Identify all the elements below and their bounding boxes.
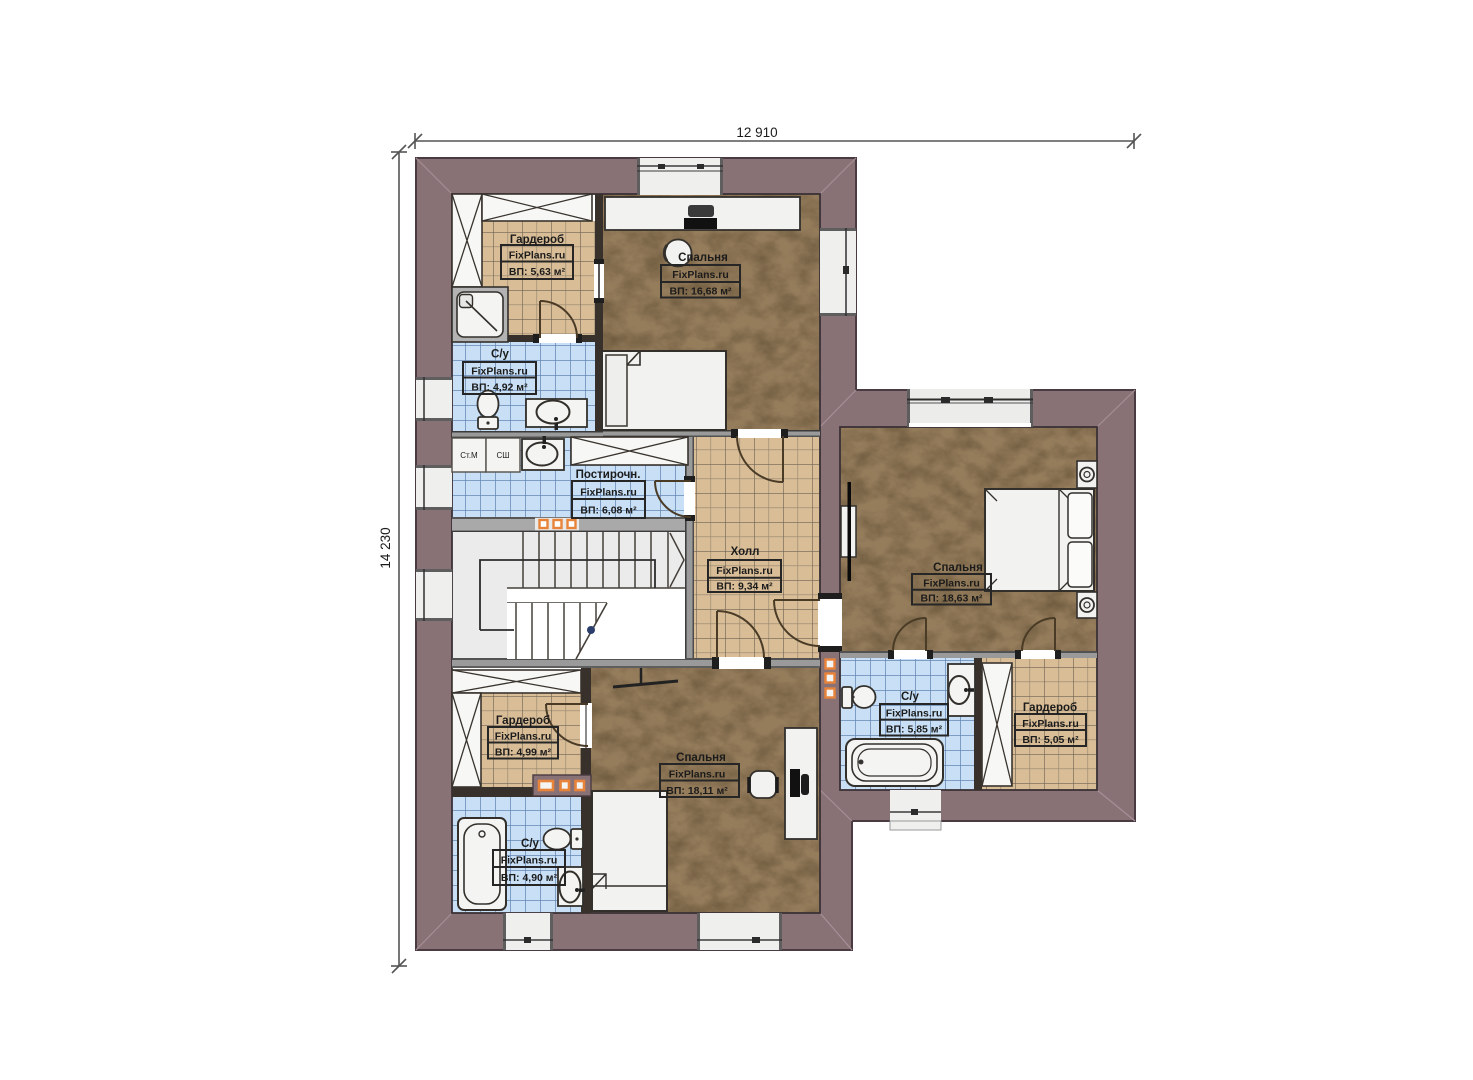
svg-text:ВП: 6,08 м²: ВП: 6,08 м² bbox=[580, 505, 637, 517]
svg-text:ВП: 4,92 м²: ВП: 4,92 м² bbox=[471, 382, 528, 394]
svg-text:FixPlans.ru: FixPlans.ru bbox=[471, 366, 528, 378]
svg-text:FixPlans.ru: FixPlans.ru bbox=[923, 578, 980, 590]
svg-text:FixPlans.ru: FixPlans.ru bbox=[716, 565, 773, 577]
svg-text:С/у: С/у bbox=[491, 349, 510, 361]
svg-text:С/у: С/у bbox=[521, 838, 540, 850]
svg-text:FixPlans.ru: FixPlans.ru bbox=[580, 487, 637, 499]
svg-text:ВП: 5,63 м²: ВП: 5,63 м² bbox=[509, 266, 566, 278]
svg-text:ВП: 5,85 м²: ВП: 5,85 м² bbox=[886, 724, 943, 736]
svg-text:Холл: Холл bbox=[731, 546, 760, 558]
svg-text:ВП: 18,11 м²: ВП: 18,11 м² bbox=[666, 785, 728, 797]
svg-text:ВП: 18,63 м²: ВП: 18,63 м² bbox=[920, 593, 983, 605]
svg-text:ВП: 16,68 м²: ВП: 16,68 м² bbox=[669, 286, 732, 298]
svg-text:ВП: 5,05 м²: ВП: 5,05 м² bbox=[1022, 734, 1079, 746]
svg-text:FixPlans.ru: FixPlans.ru bbox=[509, 250, 566, 262]
svg-text:FixPlans.ru: FixPlans.ru bbox=[495, 731, 552, 743]
svg-text:Ст.М: Ст.М bbox=[460, 451, 478, 460]
svg-text:FixPlans.ru: FixPlans.ru bbox=[672, 269, 729, 281]
svg-text:ВП: 9,34 м²: ВП: 9,34 м² bbox=[716, 581, 773, 593]
svg-text:ВП: 4,99 м²: ВП: 4,99 м² bbox=[495, 747, 552, 759]
svg-text:Гардероб: Гардероб bbox=[1023, 702, 1077, 714]
svg-text:FixPlans.ru: FixPlans.ru bbox=[886, 708, 943, 720]
svg-text:12 910: 12 910 bbox=[736, 125, 777, 140]
svg-text:С/у: С/у bbox=[901, 691, 920, 703]
svg-text:FixPlans.ru: FixPlans.ru bbox=[501, 855, 558, 867]
svg-text:Спальня: Спальня bbox=[676, 752, 726, 764]
svg-text:ВП: 4,90 м²: ВП: 4,90 м² bbox=[501, 872, 558, 884]
svg-text:FixPlans.ru: FixPlans.ru bbox=[1022, 718, 1079, 730]
svg-text:Гардероб: Гардероб bbox=[496, 715, 550, 727]
svg-text:FixPlans.ru: FixPlans.ru bbox=[669, 769, 726, 781]
svg-text:Спальня: Спальня bbox=[678, 252, 728, 264]
svg-text:Гардероб: Гардероб bbox=[510, 234, 564, 246]
svg-text:Спальня: Спальня bbox=[933, 562, 983, 574]
svg-text:Постирочн.: Постирочн. bbox=[576, 469, 641, 481]
svg-text:14 230: 14 230 bbox=[378, 527, 393, 568]
svg-text:СШ: СШ bbox=[496, 451, 509, 460]
